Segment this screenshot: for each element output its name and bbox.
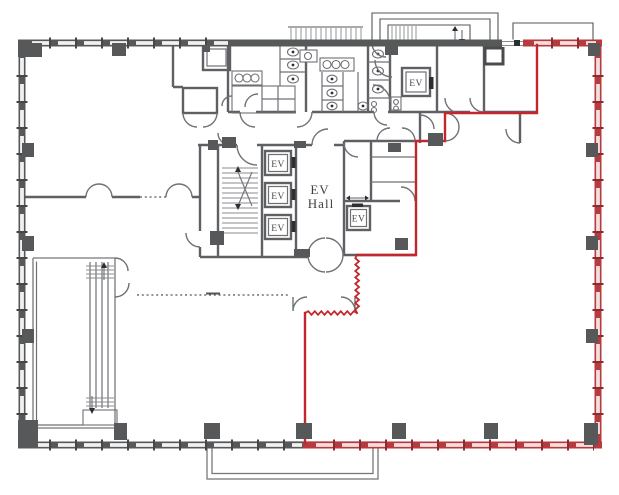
elevator-label-5: EV <box>352 215 365 225</box>
ev-hall-label-line1: EV <box>310 182 329 197</box>
restrooms <box>232 46 401 113</box>
lavatory <box>300 50 317 62</box>
vestibule-room <box>183 88 217 113</box>
lease-boundary-line <box>357 45 537 255</box>
elevator-label-2: EV <box>271 192 284 202</box>
floor-plan-drawing: EV EV EV EV EV EV Hall <box>0 0 619 495</box>
top-wall-entry <box>502 40 524 48</box>
floor-plan-page: EV EV EV EV EV EV Hall <box>0 0 619 495</box>
elevator-label-3: EV <box>271 224 284 234</box>
sink-counter-women <box>232 71 262 85</box>
elevator-label-1: EV <box>271 160 284 170</box>
elevator-door-4 <box>429 77 434 89</box>
outer-walls <box>18 40 524 448</box>
lease-boundary-partition-v <box>355 255 359 313</box>
roof-stair-structure <box>288 13 593 44</box>
ev-hall-label-line2: Hall <box>308 196 334 211</box>
stairwell-bottom-left <box>33 258 117 428</box>
elevator-door-5 <box>352 204 363 208</box>
elevator-door-2 <box>292 189 296 200</box>
shaft-box-right <box>485 48 503 64</box>
dotted-guides <box>137 197 290 295</box>
elevator-door-1 <box>292 157 296 168</box>
elevator-door-3 <box>292 221 296 232</box>
structural-columns <box>18 43 600 447</box>
lease-boundary-partition-h <box>305 311 357 315</box>
core-staircase <box>222 166 258 233</box>
lease-boundary <box>303 43 602 447</box>
door-arcs <box>86 43 520 311</box>
elevator-label-4: EV <box>409 79 422 89</box>
